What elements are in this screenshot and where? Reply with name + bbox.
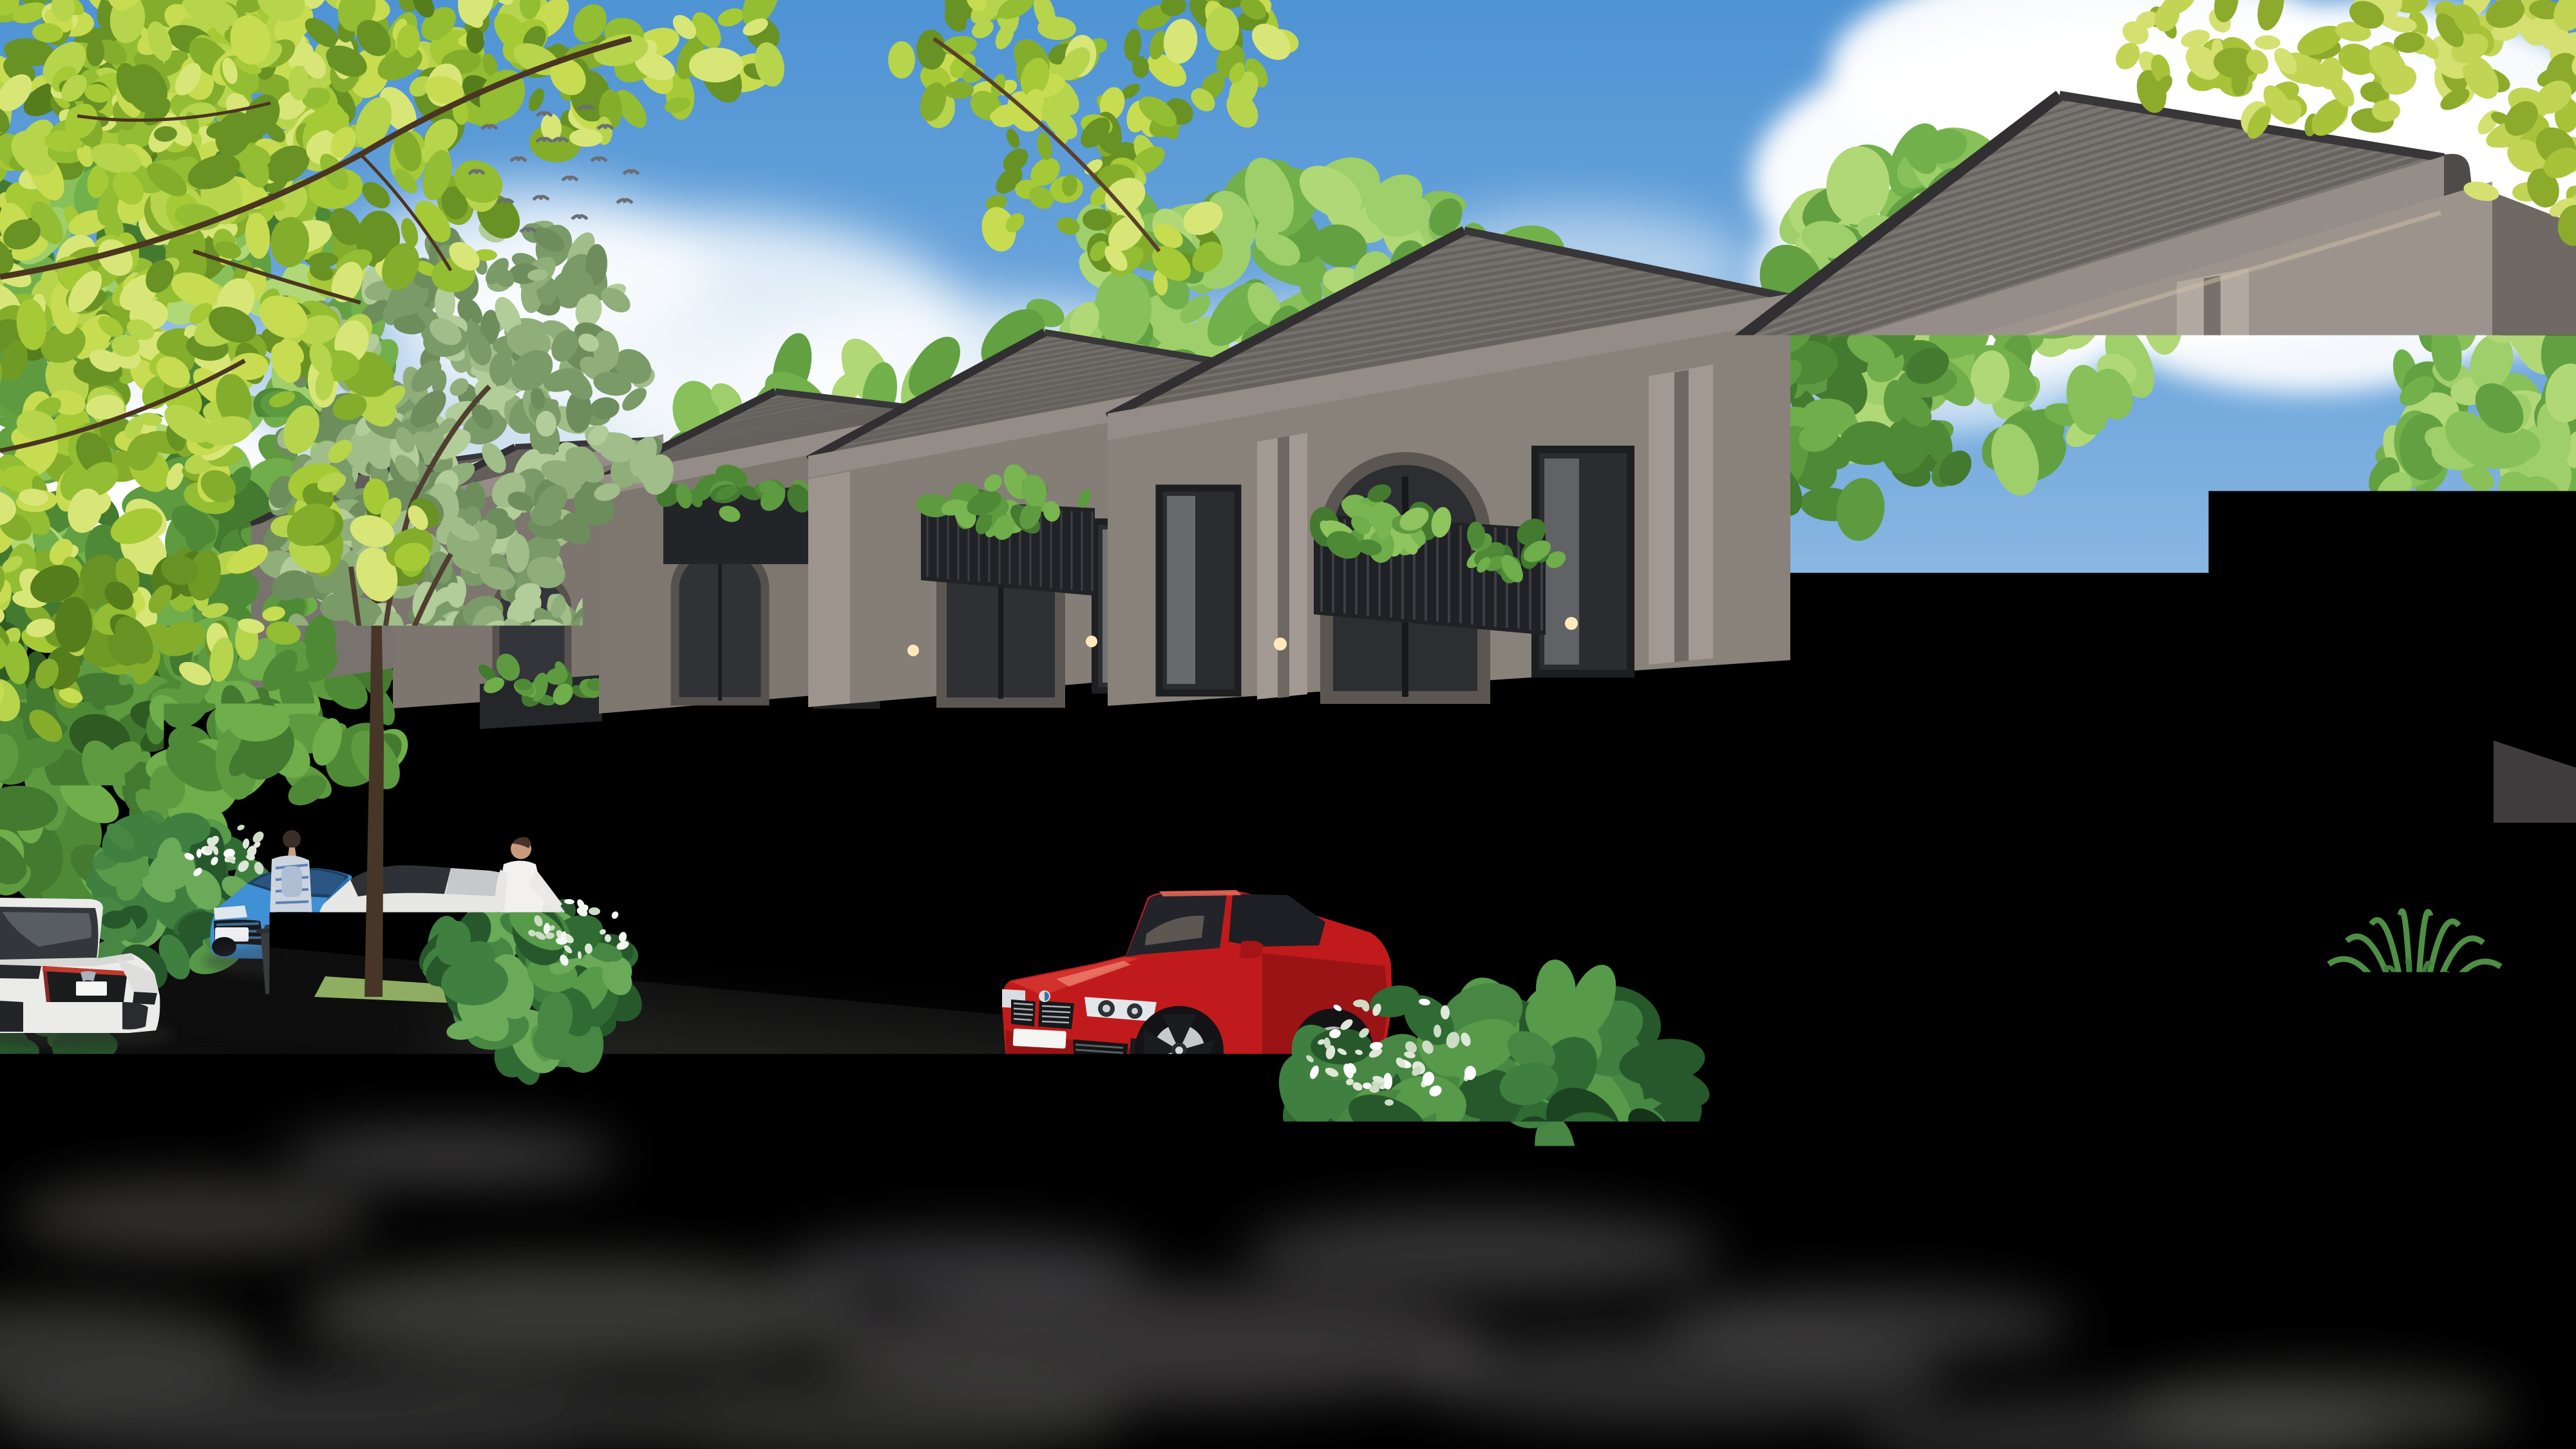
svg-text:B16: B16 (1557, 930, 1611, 964)
svg-text:B15: B15 (1434, 931, 1487, 965)
svg-text:B14: B14 (595, 872, 625, 891)
